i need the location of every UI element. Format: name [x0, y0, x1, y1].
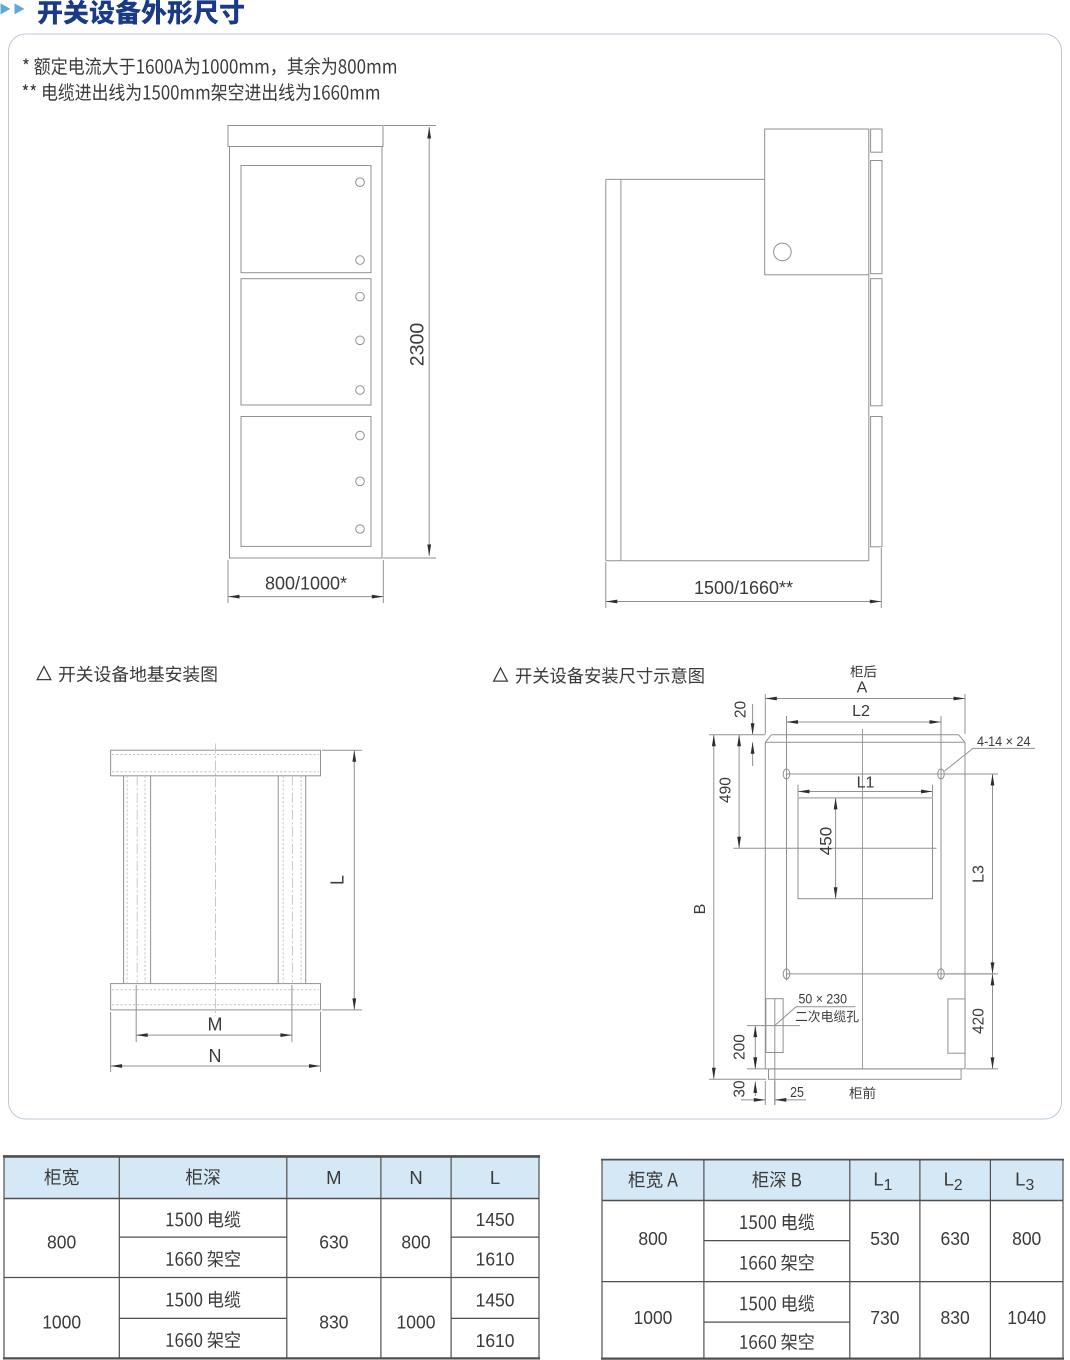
svg-text:1500/1660**: 1500/1660**	[694, 578, 793, 598]
svg-text:1040: 1040	[1007, 1307, 1046, 1328]
svg-text:830: 830	[941, 1307, 970, 1328]
svg-text:800/1000*: 800/1000*	[265, 574, 347, 594]
svg-text:L: L	[490, 1167, 500, 1188]
svg-text:730: 730	[870, 1307, 899, 1328]
svg-text:N: N	[409, 1167, 422, 1188]
svg-text:25: 25	[790, 1085, 804, 1101]
svg-text:800: 800	[401, 1232, 430, 1253]
svg-text:1000: 1000	[397, 1311, 436, 1332]
svg-text:630: 630	[941, 1228, 970, 1249]
svg-text:M: M	[326, 1167, 341, 1188]
svg-text:M: M	[208, 1014, 223, 1034]
svg-text:2300: 2300	[407, 323, 429, 367]
svg-text:N: N	[209, 1046, 222, 1066]
svg-text:490: 490	[717, 777, 734, 803]
svg-text:50 × 230: 50 × 230	[799, 991, 848, 1007]
svg-text:L1: L1	[857, 774, 875, 791]
svg-text:800: 800	[638, 1228, 667, 1249]
svg-text:630: 630	[319, 1232, 348, 1253]
svg-text:200: 200	[732, 1034, 749, 1060]
svg-text:800: 800	[47, 1232, 76, 1253]
svg-text:1450: 1450	[476, 1209, 515, 1230]
svg-text:420: 420	[971, 1008, 988, 1034]
svg-text:L3: L3	[971, 865, 988, 883]
svg-text:530: 530	[870, 1228, 899, 1249]
svg-text:A: A	[857, 679, 868, 696]
svg-text:1000: 1000	[42, 1311, 81, 1332]
svg-text:1450: 1450	[476, 1289, 515, 1310]
svg-text:L: L	[328, 875, 348, 885]
svg-text:450: 450	[817, 827, 836, 855]
svg-text:20: 20	[733, 701, 750, 719]
svg-text:30: 30	[732, 1080, 749, 1098]
svg-text:830: 830	[319, 1311, 348, 1332]
svg-text:1610: 1610	[476, 1249, 515, 1270]
svg-text:1000: 1000	[634, 1307, 673, 1328]
svg-text:4-14 × 24: 4-14 × 24	[977, 733, 1031, 749]
svg-text:L2: L2	[852, 703, 870, 720]
svg-text:B: B	[692, 904, 709, 915]
svg-text:1610: 1610	[476, 1330, 515, 1351]
svg-text:800: 800	[1012, 1228, 1041, 1249]
